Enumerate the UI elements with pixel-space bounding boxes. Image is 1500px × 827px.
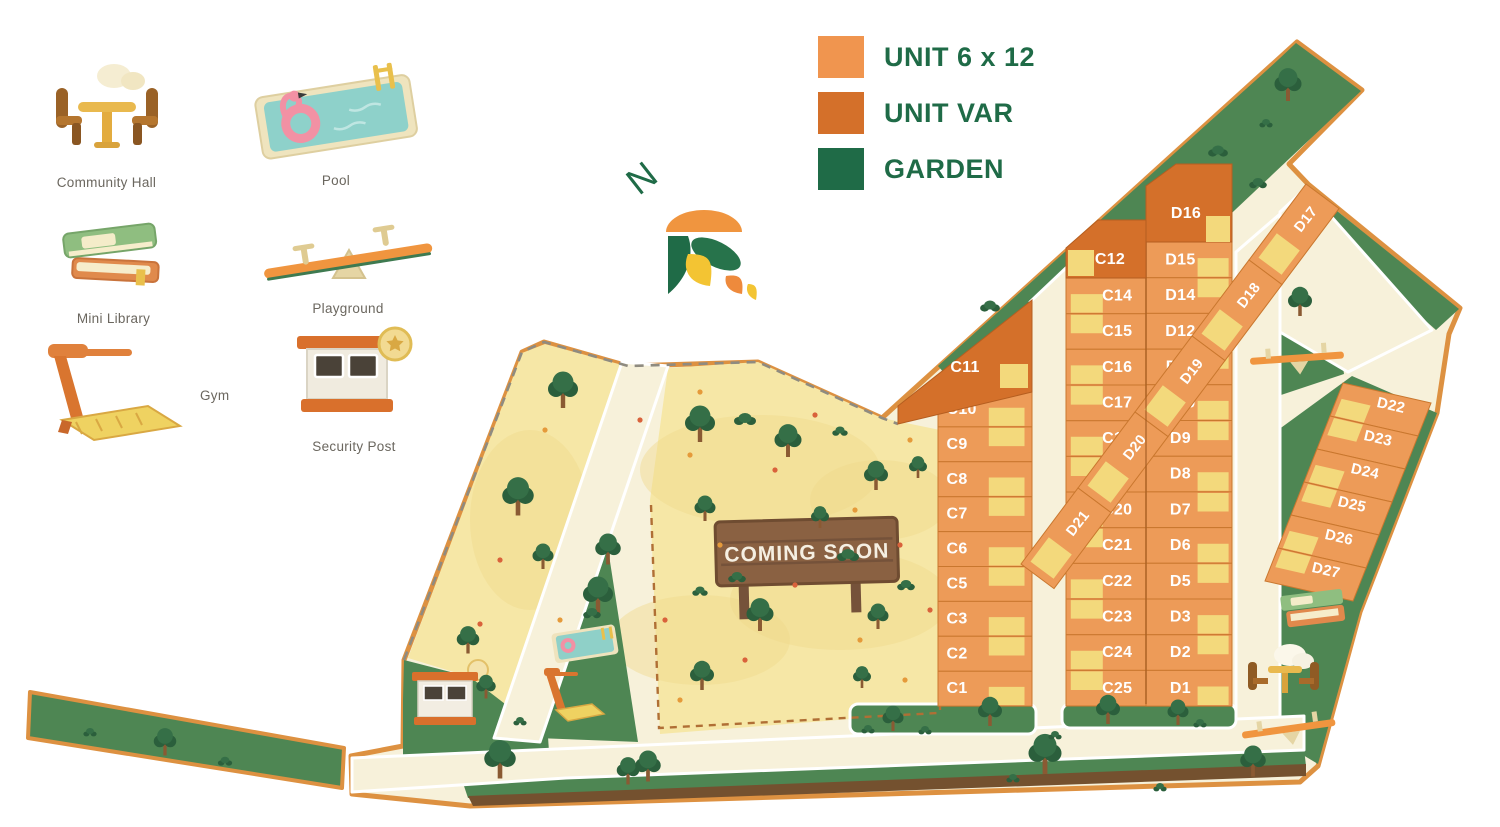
tree-foliage xyxy=(157,728,173,744)
chair xyxy=(1310,662,1319,690)
unit-yard xyxy=(1198,564,1229,583)
window xyxy=(447,686,466,700)
bush-leaf xyxy=(842,549,855,559)
unit-yard xyxy=(1198,258,1229,277)
unit-yard xyxy=(989,637,1025,655)
unit-label: C6 xyxy=(947,541,968,558)
unit-yard xyxy=(989,568,1025,586)
legend-item-unit-6x12: UNIT 6 x 12 xyxy=(818,36,1035,78)
tree-foliage xyxy=(489,740,511,762)
bush xyxy=(980,301,1000,312)
legend-label: UNIT 6 x 12 xyxy=(884,42,1035,73)
garden-base-west-block xyxy=(850,704,1036,734)
ground-dot xyxy=(927,607,932,612)
unit-label: C22 xyxy=(1102,573,1132,590)
ground-dot xyxy=(792,582,797,587)
bush-leaf xyxy=(1262,119,1270,125)
tree-foliage xyxy=(886,705,901,720)
unit-yard xyxy=(1198,544,1229,563)
ground-dot xyxy=(687,452,692,457)
tree-foliage xyxy=(1100,695,1117,712)
seesaw-handle xyxy=(1265,349,1271,359)
unit-label: C25 xyxy=(1102,680,1132,697)
seat xyxy=(1253,678,1268,684)
unit-label: C21 xyxy=(1102,537,1132,554)
unit-label: D14 xyxy=(1165,287,1195,304)
ground-dot xyxy=(902,677,907,682)
amenity-mini-library: Mini Library xyxy=(36,198,191,326)
bush-leaf xyxy=(739,413,752,423)
bush-leaf xyxy=(1051,731,1059,737)
tree-foliage xyxy=(698,495,713,510)
roof xyxy=(412,672,478,681)
unit-yard xyxy=(1206,216,1230,242)
tree-foliage xyxy=(982,697,999,714)
legend-item-garden: GARDEN xyxy=(818,148,1035,190)
playground-icon xyxy=(255,198,441,296)
ground-dot xyxy=(557,617,562,622)
north-label: N xyxy=(619,154,665,203)
bush-leaf xyxy=(984,301,996,310)
window xyxy=(424,686,443,700)
unit-yard xyxy=(1198,615,1229,634)
base xyxy=(414,717,476,725)
amenity-label: Security Post xyxy=(312,439,395,454)
legend-swatch-garden xyxy=(818,148,864,190)
unit-label: C16 xyxy=(1102,359,1132,376)
ground-dot xyxy=(812,412,817,417)
mini-library-icon xyxy=(44,198,184,306)
gym-icon xyxy=(30,334,190,456)
tree-foliage xyxy=(536,543,551,558)
ground-dot xyxy=(742,657,747,662)
ground-dot xyxy=(662,617,667,622)
tree-foliage xyxy=(479,675,493,689)
coming-soon-label: COMING SOON xyxy=(724,539,890,566)
unit-yard xyxy=(1071,671,1103,690)
bush-leaf xyxy=(1156,783,1164,789)
unit-label: C15 xyxy=(1102,323,1132,340)
ground-dot xyxy=(852,507,857,512)
tree-foliage xyxy=(912,456,925,469)
ground-dot xyxy=(677,697,682,702)
unit-yard xyxy=(1198,687,1229,706)
tree-foliage xyxy=(868,461,885,478)
tree-foliage xyxy=(460,626,476,642)
unit-yard xyxy=(1071,386,1103,405)
community-hall-icon xyxy=(32,60,182,170)
amenity-security-post: Security Post xyxy=(284,322,424,454)
unit-label: C5 xyxy=(947,576,968,593)
tree-foliage xyxy=(751,598,770,617)
site-plan-page: C10C9C8C7C6C5C3C2C1C14C15C16C17C18C19C20… xyxy=(0,0,1500,827)
bush-leaf xyxy=(1009,774,1017,780)
unit-label: D3 xyxy=(1170,609,1191,626)
north-indicator: N xyxy=(598,146,778,316)
unit-label: D15 xyxy=(1165,252,1195,269)
seat xyxy=(1299,678,1314,684)
unit-yard xyxy=(1198,472,1229,491)
unit-yard xyxy=(989,617,1025,635)
legend-item-unit-var: UNIT VAR xyxy=(818,92,1035,134)
bush-leaf xyxy=(695,587,704,594)
unit-label: C7 xyxy=(947,506,968,523)
unit-yard xyxy=(1071,294,1103,313)
unit-label: C17 xyxy=(1102,395,1132,412)
road-central xyxy=(1030,266,1068,740)
unit-yard xyxy=(989,428,1025,446)
tree-foliage xyxy=(814,506,827,519)
bush-leaf xyxy=(901,580,911,588)
tree-foliage xyxy=(553,372,574,393)
tree-foliage xyxy=(507,477,529,499)
tree-foliage xyxy=(694,661,711,678)
unit-label: C24 xyxy=(1102,644,1132,661)
chair xyxy=(1248,662,1257,690)
tree-foliage xyxy=(690,406,711,427)
amenity-label: Mini Library xyxy=(77,311,150,326)
security-post-icon xyxy=(289,322,419,434)
amenity-label: Pool xyxy=(322,173,350,188)
bush-leaf xyxy=(587,608,597,616)
legend: UNIT 6 x 12 UNIT VAR GARDEN xyxy=(818,36,1035,204)
tree-foliage xyxy=(588,577,609,598)
bush-leaf xyxy=(516,717,524,723)
ground-dot xyxy=(717,542,722,547)
unit-label: C14 xyxy=(1102,288,1132,305)
garden-median-strip xyxy=(28,692,344,788)
unit-yard xyxy=(989,498,1025,516)
amenity-pool: Pool xyxy=(236,56,436,188)
unit-label: D5 xyxy=(1170,573,1191,590)
tree-foliage xyxy=(1171,699,1186,714)
tree-foliage xyxy=(1279,68,1298,87)
bush-leaf xyxy=(921,726,929,732)
unit-yard xyxy=(989,547,1025,565)
amenity-label: Gym xyxy=(200,388,229,403)
unit-yard xyxy=(1071,579,1103,598)
unit-label: D16 xyxy=(1171,205,1201,222)
unit-label: C12 xyxy=(1095,251,1125,268)
north-logo-art: N xyxy=(598,146,778,311)
unit-label: C8 xyxy=(947,471,968,488)
unit-yard xyxy=(1000,364,1028,388)
pool-icon xyxy=(240,56,432,168)
tree-foliage xyxy=(856,666,869,679)
ground-dot xyxy=(637,417,642,422)
unit-yard xyxy=(1071,600,1103,619)
tree-foliage xyxy=(1292,287,1309,304)
bush-leaf xyxy=(221,757,229,764)
unit-yard xyxy=(1198,493,1229,512)
tree-foliage xyxy=(639,750,657,768)
unit-label: C9 xyxy=(947,436,968,453)
unit-yard xyxy=(989,478,1025,496)
seesaw-handle xyxy=(1321,343,1327,353)
unit-yard xyxy=(1068,250,1094,276)
legend-swatch-unit-6x12 xyxy=(818,36,864,78)
table xyxy=(1268,666,1302,673)
ground-dot xyxy=(697,389,702,394)
amenity-label: Playground xyxy=(312,301,383,316)
legend-label: GARDEN xyxy=(884,154,1004,185)
amenity-community-hall: Community Hall xyxy=(24,60,189,190)
ground-dot xyxy=(907,437,912,442)
legend-swatch-unit-var xyxy=(818,92,864,134)
bar xyxy=(552,672,578,676)
unit-label: D7 xyxy=(1170,501,1191,518)
tree-foliage xyxy=(620,757,636,773)
unit-label: D2 xyxy=(1170,644,1191,661)
unit-label: C23 xyxy=(1102,609,1132,626)
ground-dot xyxy=(897,542,902,547)
tree-foliage xyxy=(779,424,798,443)
unit-label: D1 xyxy=(1170,680,1191,697)
unit-label: D9 xyxy=(1170,430,1191,447)
tree-foliage xyxy=(599,533,617,551)
amenity-label: Community Hall xyxy=(57,175,156,190)
unit-label: C2 xyxy=(947,645,968,662)
unit-yard xyxy=(1071,365,1103,384)
bush-leaf xyxy=(1212,146,1224,155)
brand-logo xyxy=(666,210,757,300)
amenity-gym: Gym xyxy=(30,334,229,456)
unit-yard xyxy=(1071,437,1103,456)
bush-leaf xyxy=(1196,719,1204,725)
unit-yard xyxy=(1198,636,1229,655)
ground-dot xyxy=(542,427,547,432)
ground-dot xyxy=(477,621,482,626)
bush-leaf xyxy=(86,728,94,734)
unit-label: C3 xyxy=(947,610,968,627)
ground-dot xyxy=(497,557,502,562)
ground-dot xyxy=(772,467,777,472)
unit-label: D6 xyxy=(1170,537,1191,554)
unit-yard xyxy=(989,408,1025,426)
unit-yard xyxy=(1198,422,1229,441)
unit-label: C1 xyxy=(947,680,968,697)
bush-leaf xyxy=(835,427,844,434)
table-leg xyxy=(1282,673,1288,693)
amenity-playground: Playground xyxy=(248,198,448,316)
unit-yard xyxy=(1198,401,1229,420)
bush-leaf xyxy=(732,572,742,580)
garden-base-east-block xyxy=(1062,704,1236,728)
unit-yard xyxy=(1071,651,1103,670)
tree-foliage xyxy=(871,603,886,618)
unit-yard xyxy=(1071,315,1103,334)
legend-label: UNIT VAR xyxy=(884,98,1014,129)
unit-label: C11 xyxy=(950,359,979,376)
ground-dot xyxy=(857,637,862,642)
tree-foliage xyxy=(1244,745,1262,763)
bush-leaf xyxy=(1253,178,1263,186)
bush-leaf xyxy=(864,725,872,731)
unit-label: D8 xyxy=(1170,466,1191,483)
